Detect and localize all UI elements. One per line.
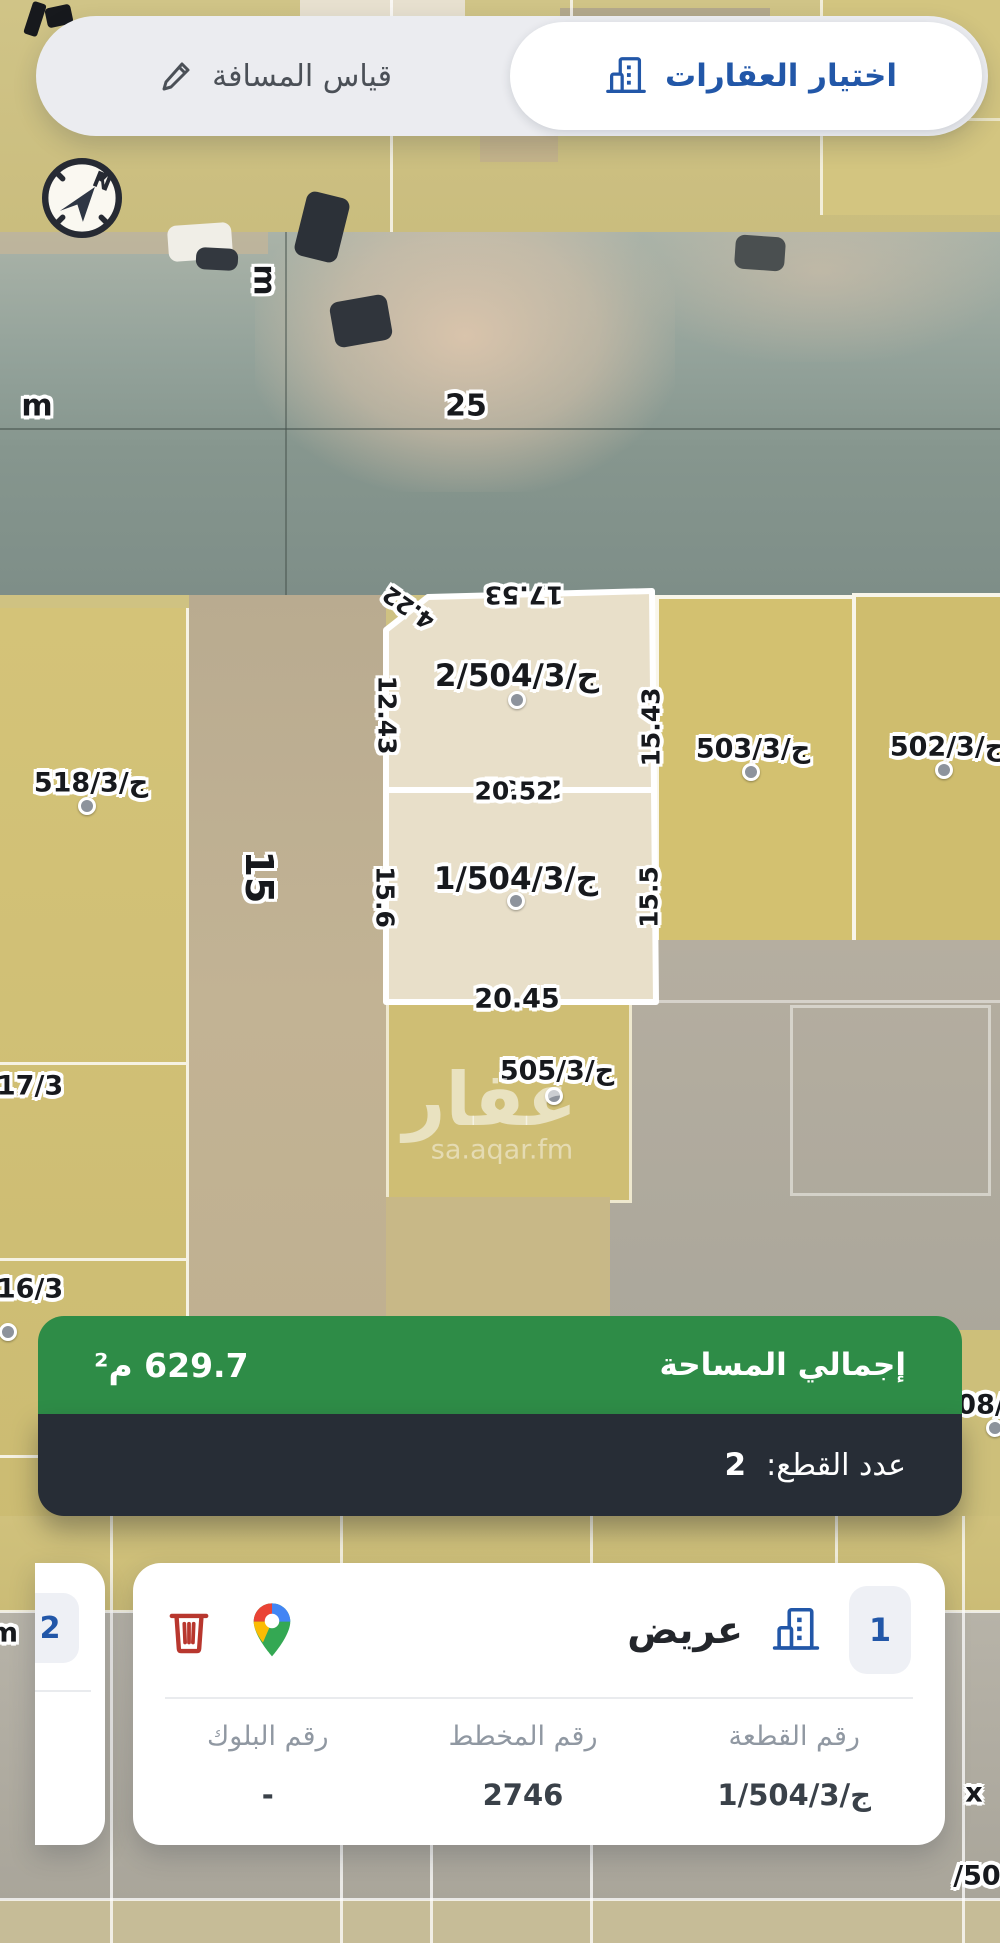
map-label-partial-50: /50 <box>953 1861 1000 1892</box>
parcel-count-label: عدد القطع: <box>766 1448 906 1483</box>
road-width-label-25: 25 <box>445 389 487 424</box>
map-intersection <box>640 232 1000 362</box>
property-card-fields: رقم القطعة 1/ج/504/3 رقم المخطط 2746 رقم… <box>165 1697 913 1845</box>
parcel-centroid-dot <box>507 892 525 910</box>
dim-p1-left-15-6: 15.6 <box>371 866 400 928</box>
map-lane-line <box>0 428 1000 430</box>
measure-distance-button[interactable]: قياس المسافة <box>36 16 512 136</box>
field-label: رقم البلوك <box>207 1721 329 1752</box>
delete-button[interactable] <box>167 1605 211 1655</box>
map-boundary-line <box>285 232 287 595</box>
map-label-partial-m: m <box>0 1618 18 1649</box>
parcel-centroid-dot <box>986 1419 1000 1437</box>
trash-icon <box>167 1605 211 1655</box>
parcel-508-label-partial: 08/ <box>957 1390 1000 1421</box>
dim-mid-20-52: 20.52 <box>474 777 553 806</box>
total-area-bar: إجمالي المساحة 629.7 م² <box>38 1316 962 1414</box>
map-parcel-502[interactable] <box>852 593 1000 944</box>
aqar-watermark-url: sa.aqar.fm <box>431 1135 573 1166</box>
measure-distance-label: قياس المسافة <box>212 59 392 94</box>
street-15-label: 15 <box>237 851 281 904</box>
parcel-516-label-partial: 16/3 <box>0 1274 63 1305</box>
parcel-2-504-label: 2/ج/504/3 <box>435 658 599 694</box>
building-icon <box>769 1603 823 1657</box>
map-car <box>734 234 786 271</box>
parcel-centroid-dot <box>742 763 760 781</box>
map-boundary-line <box>656 1000 1000 1003</box>
parcel-502-label: ج/502/3 <box>890 732 1000 763</box>
parcel-centroid-dot <box>508 691 526 709</box>
field-value: 1/ج/504/3 <box>717 1778 871 1812</box>
total-area-value: 629.7 م² <box>94 1346 249 1385</box>
property-card-header: 1 عريض <box>133 1563 945 1697</box>
divider <box>35 1690 91 1692</box>
map-bottom-strip <box>0 1900 1000 1943</box>
pencil-icon <box>156 56 196 96</box>
dim-p2-left-12-43: 12.43 <box>373 675 402 754</box>
compass-control[interactable]: N <box>36 152 128 244</box>
parcel-count-value: 2 <box>725 1447 747 1483</box>
map-car <box>195 247 238 271</box>
field-plan-number: رقم المخطط 2746 <box>448 1721 597 1845</box>
field-label: رقم القطعة <box>728 1721 860 1752</box>
parcel-centroid-dot <box>935 761 953 779</box>
map-boundary-line <box>110 1516 113 1943</box>
google-maps-pin-icon <box>251 1602 293 1658</box>
road-width-label-m: m <box>21 389 52 424</box>
field-label: رقم المخطط <box>448 1721 597 1752</box>
map-intersection <box>255 232 675 492</box>
card-actions <box>167 1602 293 1658</box>
parcel-517-label-partial: 17/3 <box>0 1071 63 1102</box>
app-screen: m 25 m 15 17.53 4.22 12.43 15.43 2/ج/504… <box>0 0 1000 1943</box>
field-value: - <box>262 1778 274 1812</box>
field-value: 2746 <box>483 1778 564 1812</box>
dim-top-17-53: 17.53 <box>484 581 563 610</box>
mode-toolbar: اختيار العقارات قياس المسافة <box>36 16 988 136</box>
google-maps-button[interactable] <box>251 1602 293 1658</box>
parcel-count-bar: عدد القطع: 2 <box>38 1414 962 1516</box>
map-parcel-outline <box>790 1005 991 1196</box>
card-index-badge: 1 <box>849 1586 911 1674</box>
map-boundary-line <box>0 1898 1000 1901</box>
select-properties-label: اختيار العقارات <box>665 58 897 94</box>
dim-p2-right-15-43: 15.43 <box>637 687 666 766</box>
total-area-label: إجمالي المساحة <box>659 1347 906 1383</box>
previous-card-index-badge: 2 <box>35 1593 79 1663</box>
field-parcel-number: رقم القطعة 1/ج/504/3 <box>717 1721 871 1845</box>
previous-property-card[interactable]: 2 <box>35 1563 105 1845</box>
building-icon <box>603 53 649 99</box>
field-block-number: رقم البلوك - <box>207 1721 329 1845</box>
dim-p1-right-15-5: 15.5 <box>635 866 664 928</box>
property-name: عريض <box>627 1608 743 1652</box>
property-card[interactable]: 1 عريض <box>133 1563 945 1845</box>
map-label-partial-x: x <box>965 1778 982 1809</box>
parcel-503-label: ج/503/3 <box>696 734 810 765</box>
aqar-watermark-logo: عقار <box>403 1057 577 1143</box>
parcel-518-label: ج/518/3 <box>34 768 148 799</box>
dim-bottom-20-45: 20.45 <box>474 984 559 1015</box>
road-width-label-m-vertical: m <box>247 264 282 295</box>
parcel-centroid-dot <box>78 797 96 815</box>
